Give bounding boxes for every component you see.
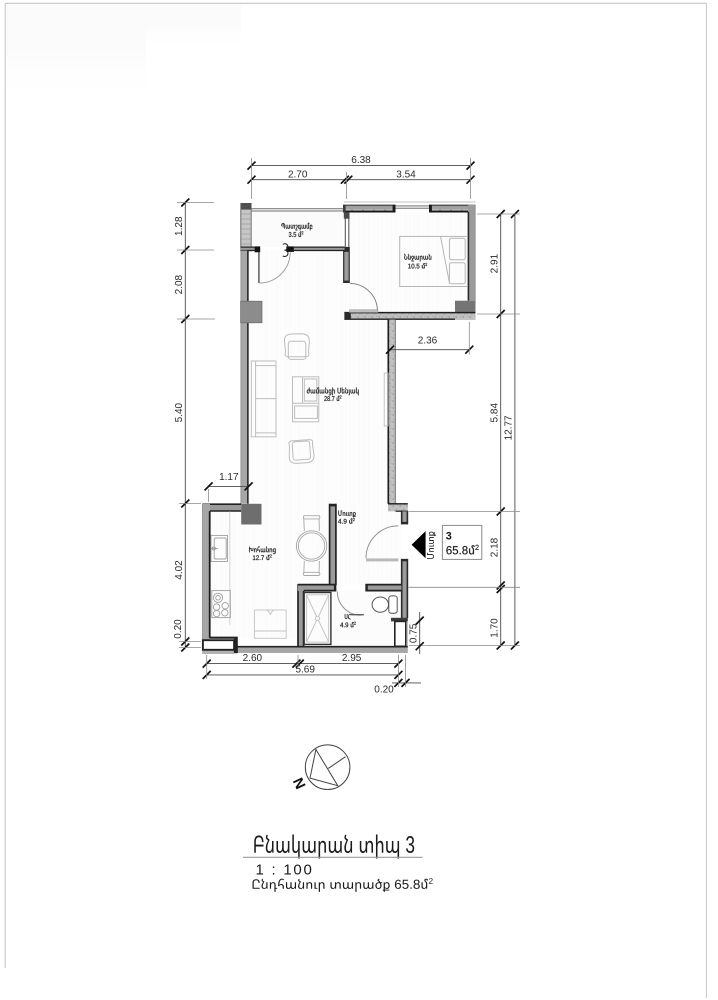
svg-text:2.70: 2.70	[288, 169, 308, 180]
svg-text:2.91: 2.91	[489, 253, 500, 273]
svg-text:1.70: 1.70	[489, 618, 500, 638]
svg-text:5.84: 5.84	[489, 403, 500, 423]
svg-text:1.28: 1.28	[174, 216, 185, 236]
svg-text:4.02: 4.02	[174, 560, 185, 580]
svg-text:12.77: 12.77	[504, 415, 515, 440]
svg-text:5.69: 5.69	[295, 664, 315, 675]
svg-text:2.18: 2.18	[489, 537, 500, 557]
svg-text:2.95: 2.95	[342, 653, 362, 664]
svg-text:3.54: 3.54	[396, 169, 416, 180]
svg-text:3: 3	[446, 531, 452, 543]
svg-text:5.40: 5.40	[174, 402, 185, 422]
svg-text:2.60: 2.60	[243, 653, 263, 664]
svg-text:1 : 100: 1 : 100	[256, 862, 314, 879]
svg-text:0.20: 0.20	[374, 685, 394, 696]
svg-text:0.20: 0.20	[173, 619, 184, 639]
svg-text:2.08: 2.08	[174, 274, 185, 294]
svg-text:1.17: 1.17	[219, 472, 239, 483]
svg-text:0.75: 0.75	[408, 623, 419, 643]
svg-text:6.38: 6.38	[351, 155, 371, 166]
svg-text:2.36: 2.36	[418, 336, 438, 347]
